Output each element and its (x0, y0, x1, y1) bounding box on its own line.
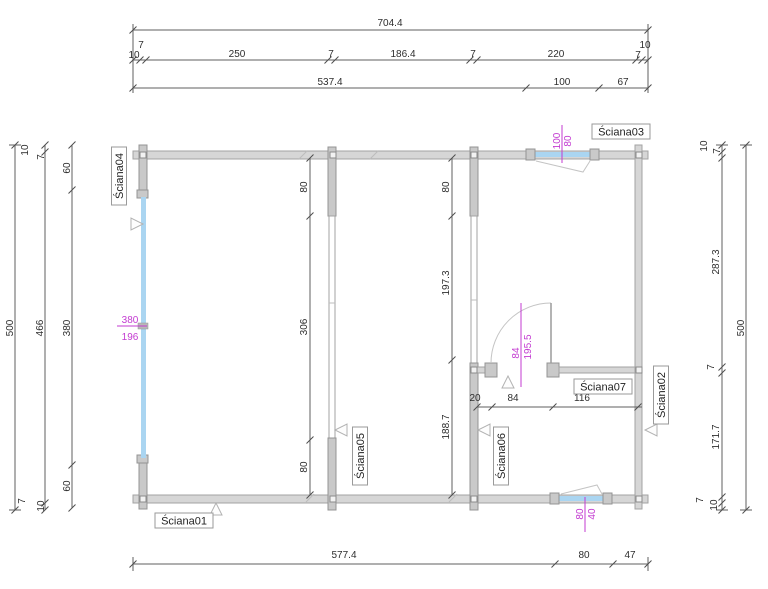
dim-left-top10: 10 (20, 144, 31, 156)
dim-left-466: 466 (35, 319, 46, 336)
wall-label-text: Ściana05 (354, 433, 367, 479)
corner-joint (471, 367, 477, 373)
wall-name-labels: Ściana01 Ściana03 Ściana07 Ściana04 Ścia… (112, 124, 669, 528)
windows (138, 149, 612, 504)
dim-right-top7: 7 (712, 148, 723, 154)
dim-left-380: 380 (62, 319, 73, 336)
wall7-left-stub (477, 367, 485, 373)
exterior-walls (133, 145, 648, 509)
dim-wall5-80-bottom: 80 (299, 461, 310, 473)
door-jamb-left (485, 363, 497, 377)
window-top-swing (536, 161, 590, 172)
corner-joint (140, 496, 146, 502)
dim-right-171: 171.7 (711, 424, 722, 449)
ann-door-84: 84 (511, 347, 522, 359)
annotation-leader-lines (117, 125, 585, 532)
ann-window-bottom-80: 80 (575, 508, 586, 520)
corner-joint (636, 496, 642, 502)
ann-window-left-196: 196 (122, 332, 139, 343)
wall-label-sciana01: Ściana01 (155, 513, 213, 528)
wall-label-text: Ściana07 (580, 381, 626, 394)
dim-bottom-80: 80 (578, 550, 590, 561)
wall6-opening (471, 216, 477, 363)
dim-right-bottom10: 10 (709, 499, 720, 511)
dim-left-bottom7: 7 (17, 498, 28, 504)
ann-window-top-80: 80 (563, 135, 574, 147)
dim-right-500: 500 (736, 319, 747, 336)
ann-window-bottom-40: 40 (587, 508, 598, 520)
marker-wall5 (335, 424, 347, 436)
floor-plan-page: 704.4 7 10 250 7 186.4 7 220 10 7 537.4 … (0, 0, 768, 589)
dim-right-mid7: 7 (706, 364, 717, 370)
corner-joints (140, 152, 642, 502)
window-bottom-swing (561, 485, 602, 494)
window-top-left-bracket (526, 149, 535, 160)
dim-top-l10: 10 (128, 50, 140, 61)
dim-bottom-47: 47 (624, 550, 636, 561)
wall-label-text: Ściana03 (598, 126, 644, 139)
wall-label-sciana03: Ściana03 (592, 124, 650, 139)
dim-right-top10: 10 (699, 140, 710, 152)
corner-joint (471, 496, 477, 502)
ann-door-195: 195.5 (523, 334, 534, 359)
window-bottom-right-bracket (603, 493, 612, 504)
window-top-right-bracket (590, 149, 599, 160)
dim-right-bottom7: 7 (695, 497, 706, 503)
corner-joint (636, 367, 642, 373)
corner-joint (636, 152, 642, 158)
dim-left-top7: 7 (36, 154, 47, 160)
wall-label-sciana02: Ściana02 (654, 366, 669, 424)
wall-label-sciana07: Ściana07 (574, 379, 632, 394)
window-bottom-left-bracket (550, 493, 559, 504)
wall-label-sciana04: Ściana04 (112, 147, 127, 205)
dim-wall6-80: 80 (441, 181, 452, 193)
wall6-bottom-segment (470, 363, 478, 510)
marker-wall7 (502, 376, 514, 388)
window-bottom-glazing (559, 496, 604, 501)
dim-wall7-84: 84 (507, 393, 519, 404)
floor-plan-canvas: 704.4 7 10 250 7 186.4 7 220 10 7 537.4 … (0, 0, 768, 589)
wall-label-text: Ściana01 (161, 515, 207, 528)
wall5-opening (329, 216, 335, 438)
corner-joint (330, 152, 336, 158)
corner-joint (330, 496, 336, 502)
corner-joint (140, 152, 146, 158)
dim-left-500: 500 (5, 319, 16, 336)
dim-wall7-20: 20 (469, 393, 481, 404)
dim-bottom-577: 577.4 (331, 550, 356, 561)
dim-left-60-top: 60 (62, 162, 73, 174)
dim-top-7a: 7 (328, 49, 334, 60)
wall-label-text: Ściana02 (655, 372, 668, 418)
ann-window-top-100: 100 (552, 132, 563, 149)
dim-top-537: 537.4 (317, 77, 342, 88)
dim-wall7-116: 116 (574, 393, 590, 404)
dim-left-bottom10: 10 (36, 500, 47, 512)
interior-walls (328, 147, 635, 510)
wall-right (635, 145, 642, 509)
corner-joint (471, 152, 477, 158)
window-left-top-bracket (137, 190, 148, 198)
log-joint-marks (299, 151, 457, 502)
dim-top-67: 67 (617, 77, 629, 88)
dim-wall5-80-top: 80 (299, 181, 310, 193)
wall7-right-segment (559, 367, 635, 373)
dim-top-r7: 7 (635, 50, 641, 61)
wall-label-sciana05: Ściana05 (353, 427, 368, 485)
dim-top-total: 704.4 (377, 18, 402, 29)
dim-top-186: 186.4 (390, 49, 415, 60)
dim-top-250: 250 (229, 49, 246, 60)
wall-label-text: Ściana06 (495, 433, 508, 479)
dim-top-7b: 7 (470, 49, 476, 60)
wall-segment-break (329, 300, 477, 303)
dim-wall5-306: 306 (299, 318, 310, 335)
dim-top-220: 220 (548, 49, 565, 60)
dim-right-287: 287.3 (711, 249, 722, 274)
marker-wall2 (645, 424, 657, 436)
dim-top-r10: 10 (639, 40, 651, 51)
ann-window-left-380: 380 (122, 315, 139, 326)
dim-wall6-197: 197.3 (441, 270, 452, 295)
wall-label-sciana06: Ściana06 (494, 427, 509, 485)
door-jamb-right (547, 363, 559, 377)
marker-wall6 (478, 424, 490, 436)
dim-wall6-188: 188.7 (441, 414, 452, 439)
wall-label-text: Ściana04 (113, 153, 126, 199)
dim-top-100: 100 (554, 77, 571, 88)
dim-left-60-bottom: 60 (62, 480, 73, 492)
